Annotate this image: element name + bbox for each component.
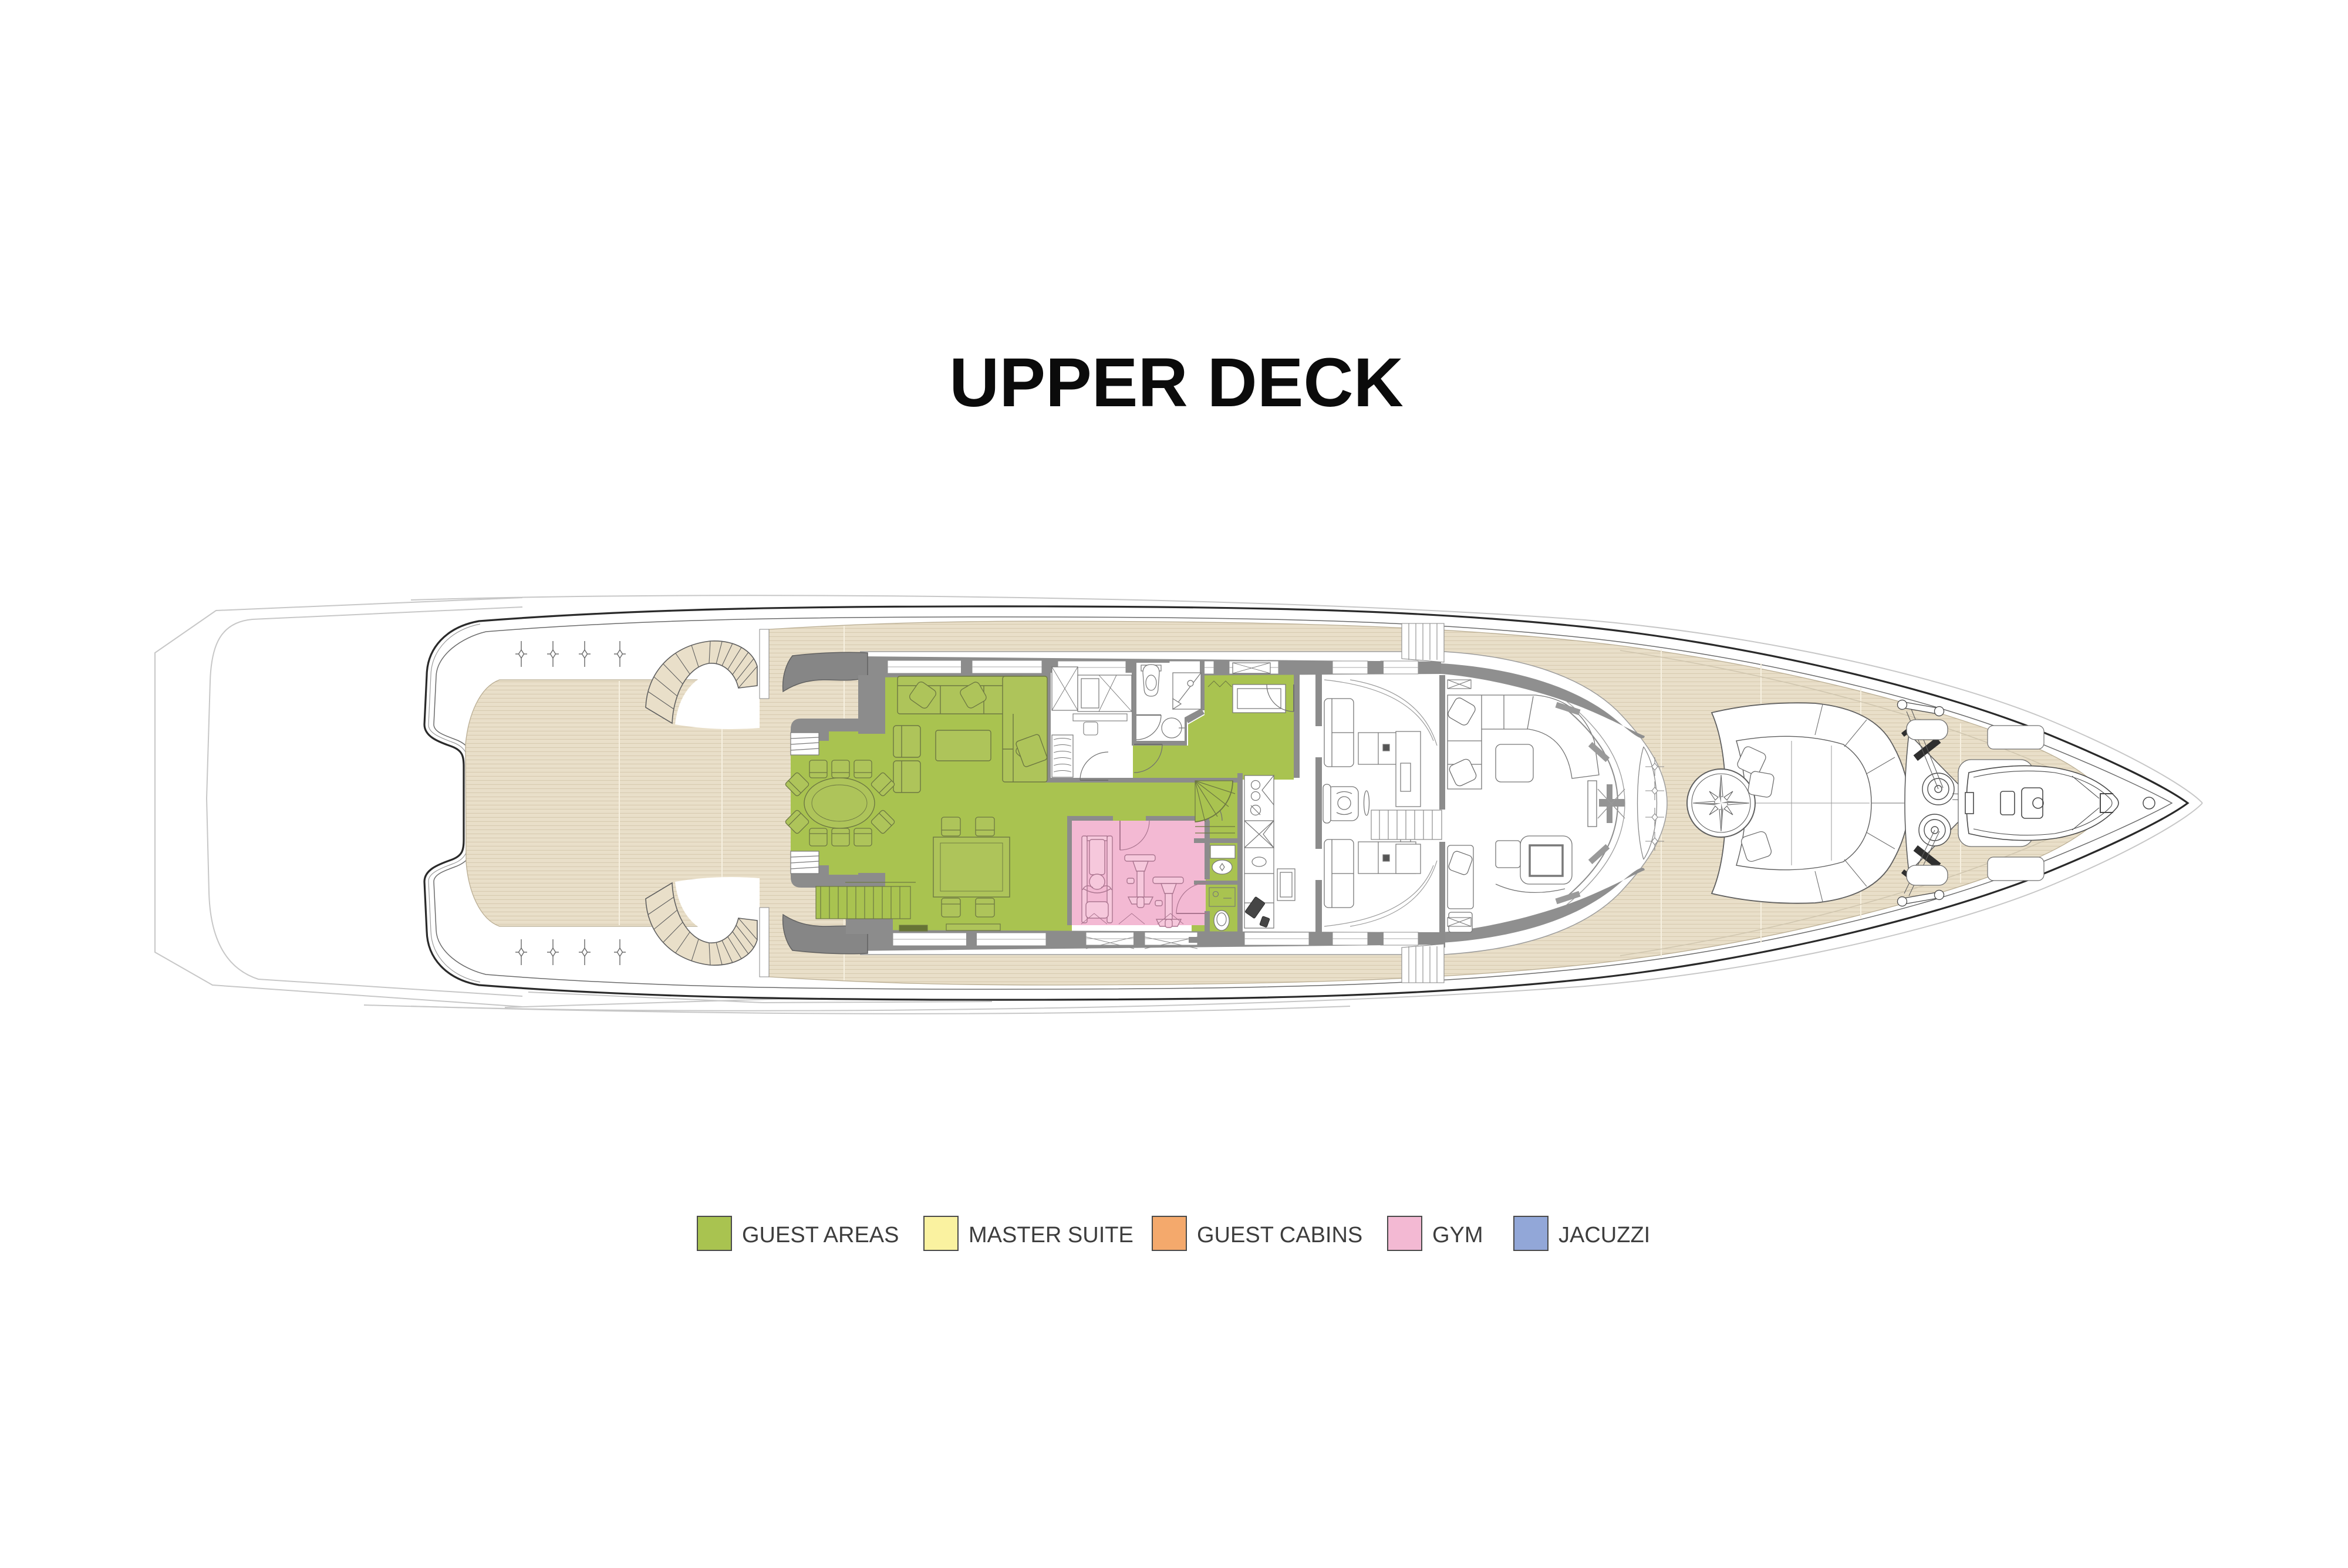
svg-text:GUEST AREAS: GUEST AREAS xyxy=(742,1223,899,1247)
svg-text:MASTER SUITE: MASTER SUITE xyxy=(969,1223,1133,1247)
svg-text:JACUZZI: JACUZZI xyxy=(1558,1223,1650,1247)
svg-text:UPPER DECK: UPPER DECK xyxy=(949,344,1404,421)
svg-text:GYM: GYM xyxy=(1432,1223,1483,1247)
svg-text:GUEST CABINS: GUEST CABINS xyxy=(1197,1223,1362,1247)
